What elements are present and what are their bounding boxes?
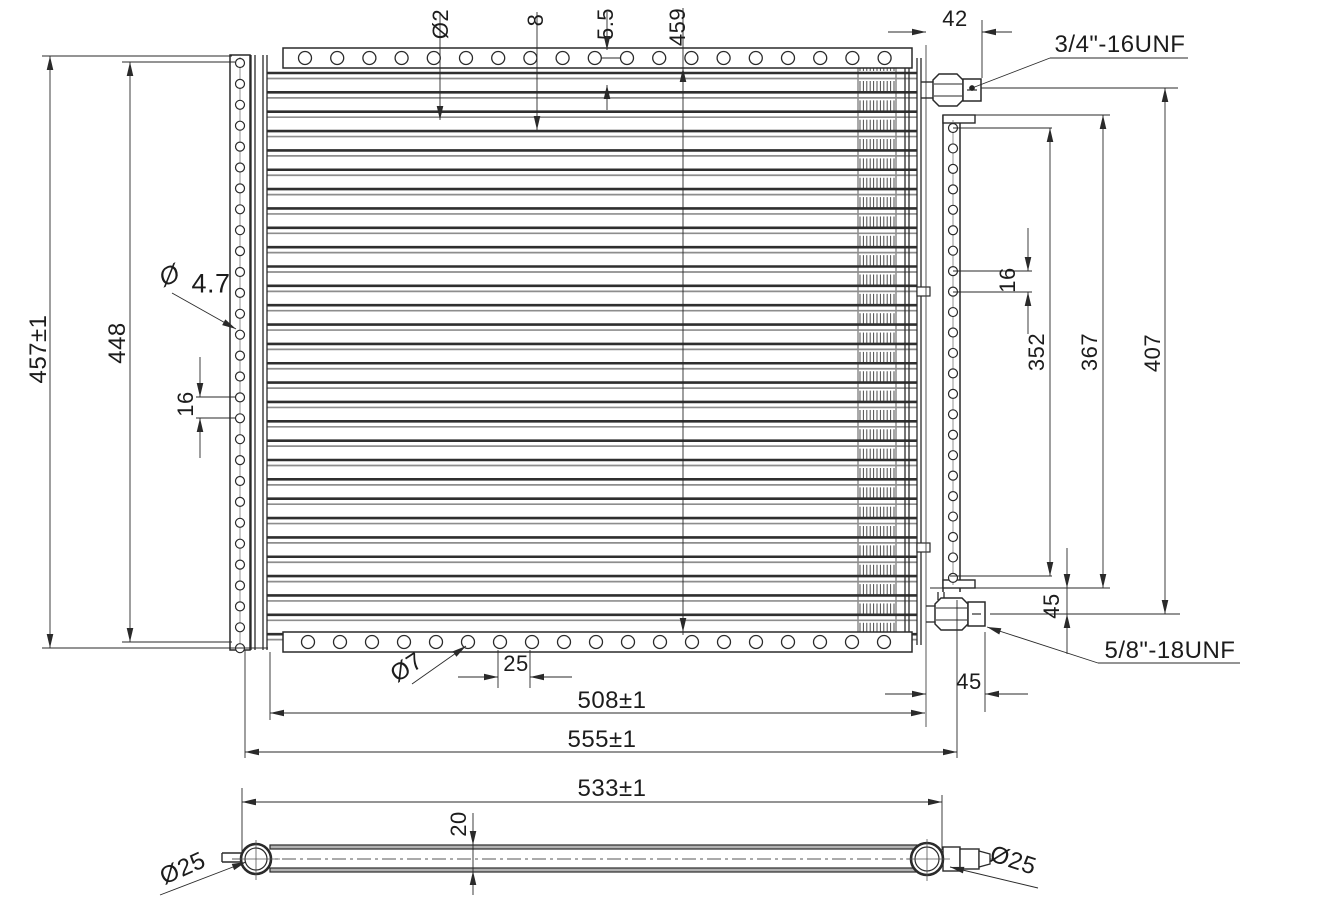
dim-bracket-span-367: 367 [1079,333,1101,371]
right-mounting-bracket [943,115,1032,592]
top-hole-strip [283,48,912,68]
dim-overall-height: 457±1 [27,314,51,383]
dim-fitting-offset-bottom: 45 [956,671,981,693]
core-tubes [267,73,917,640]
dim-core-width: 508±1 [577,689,646,713]
dim-tube-pitch: 8 [525,14,547,27]
dim-bracket-span-352: 352 [1026,333,1048,371]
left-side-plate [230,55,250,653]
dim-core-thickness: 20 [448,811,470,836]
dim-bracket-span-407: 407 [1142,334,1164,372]
technical-drawing-sheet: Ø2 8 5.5 459 42 3/4"-16UNF 457±1 448 Ø 4… [0,0,1328,901]
drawing-canvas [0,0,1328,901]
dim-bottom-hole-pitch: 25 [503,653,528,675]
bottom-view [160,788,1038,895]
dim-tube-length: 533±1 [577,777,646,801]
right-header-tube [905,45,930,727]
dim-side-hole-dia: 4.7 [191,271,230,298]
label-fitting-bottom-thread: 5/8"-18UNF [1105,639,1236,663]
dim-side-plate-height: 448 [106,322,130,364]
fin-hatch-zone [858,60,896,642]
dim-core-inner-height: 459 [667,8,689,46]
bottom-hole-strip [283,632,912,652]
fitting-bottom [926,592,985,630]
dim-tube-hole-dia: Ø2 [430,9,452,39]
label-fitting-top-thread: 3/4"-16UNF [1055,33,1186,57]
dim-fitting-drop-bottom: 45 [1041,593,1063,618]
dim-side-hole-pitch: 16 [175,391,197,416]
dim-fitting-offset-top: 42 [942,8,967,30]
dim-overall-width: 555±1 [567,728,636,752]
left-header-tube [251,55,267,650]
dim-bracket-hole-pitch: 16 [997,267,1019,292]
dim-fin-gap: 5.5 [595,8,617,40]
